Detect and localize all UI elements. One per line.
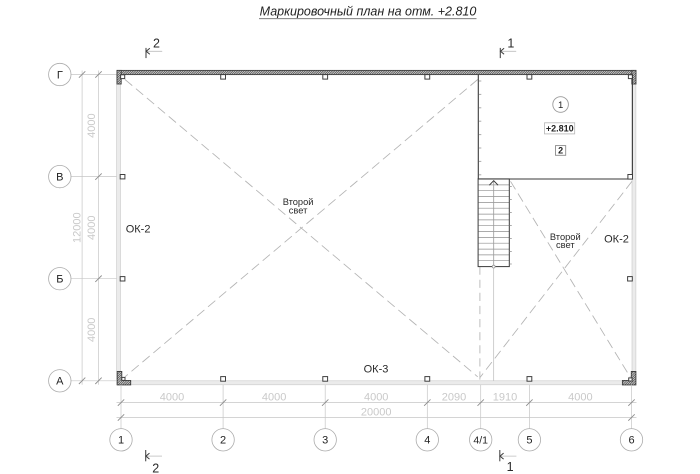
- svg-text:20000: 20000: [361, 406, 392, 418]
- svg-text:1910: 1910: [493, 392, 517, 404]
- svg-text:Г: Г: [57, 69, 63, 81]
- svg-text:4000: 4000: [86, 113, 98, 137]
- svg-text:4000: 4000: [262, 392, 286, 404]
- svg-text:свет: свет: [556, 240, 575, 250]
- svg-text:4000: 4000: [160, 392, 184, 404]
- svg-text:4000: 4000: [86, 318, 98, 342]
- svg-text:1: 1: [507, 460, 514, 474]
- svg-text:ОК-2: ОК-2: [604, 233, 629, 245]
- svg-text:4: 4: [424, 435, 430, 447]
- svg-text:12000: 12000: [72, 212, 84, 243]
- svg-text:2: 2: [220, 435, 226, 447]
- svg-text:4/1: 4/1: [473, 435, 488, 447]
- svg-text:1: 1: [558, 100, 563, 111]
- svg-text:+2.810: +2.810: [546, 124, 574, 134]
- svg-text:4000: 4000: [364, 392, 388, 404]
- svg-text:4000: 4000: [568, 392, 592, 404]
- svg-text:2: 2: [153, 37, 160, 51]
- svg-text:Маркировочный план на отм. +2.: Маркировочный план на отм. +2.810: [260, 4, 477, 18]
- svg-text:3: 3: [322, 435, 328, 447]
- svg-text:ОК-3: ОК-3: [364, 364, 389, 376]
- svg-text:1: 1: [118, 435, 124, 447]
- svg-text:В: В: [56, 172, 63, 184]
- svg-text:5: 5: [526, 435, 532, 447]
- svg-text:4000: 4000: [86, 215, 98, 239]
- svg-text:А: А: [56, 376, 64, 388]
- svg-text:2: 2: [152, 462, 159, 474]
- svg-text:Б: Б: [56, 274, 63, 286]
- svg-text:1: 1: [507, 37, 514, 51]
- svg-text:свет: свет: [289, 206, 308, 216]
- svg-text:2: 2: [558, 145, 563, 155]
- svg-text:2090: 2090: [442, 392, 466, 404]
- svg-text:ОК-2: ОК-2: [126, 224, 151, 236]
- svg-text:6: 6: [628, 435, 634, 447]
